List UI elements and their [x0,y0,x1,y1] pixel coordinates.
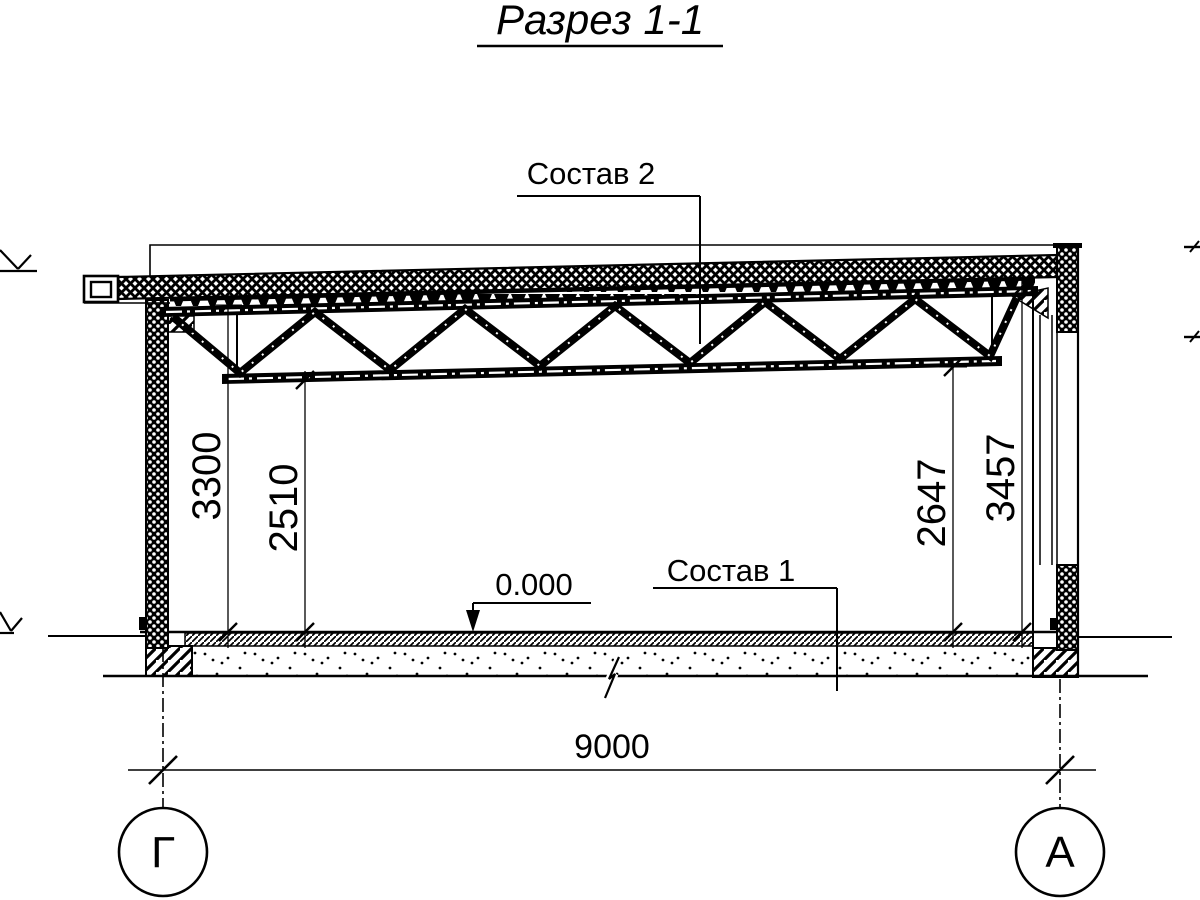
dimension-left-inner: 2510 [262,371,319,648]
foundation-right [1033,648,1078,677]
dim-value-2647: 2647 [910,459,954,548]
wall-right-lower-panel [1057,565,1078,650]
eave-gutter-inner [91,282,111,297]
wall-right-step [1050,618,1057,630]
elev-mark-roof-left-tick [18,255,31,269]
dim-value-9000: 9000 [574,728,650,766]
foundation-left [146,646,192,676]
elev-mark-roof-left-slash [0,250,18,269]
elev-mark-floor-left-slash [0,612,11,631]
dimension-right-outer: 3457 [979,278,1036,648]
dimension-right-inner: 2647 [910,358,967,648]
wall-left [139,300,168,648]
floor-composition-label: Состав 1 [667,553,796,588]
callout-floor-elevation: 0.000 [466,567,591,632]
drawing-title: Разрез 1-1 [477,0,723,46]
axis-bubbles: Г А [119,808,1104,896]
elev-mark-floor-left-tick [11,618,22,631]
floor-elevation-label: 0.000 [495,567,573,602]
dim-value-3300: 3300 [185,432,229,521]
page-title: Разрез 1-1 [496,0,704,43]
axis-letter-left: Г [151,828,175,877]
floor-screed-band [185,633,1033,646]
roof-composition-label: Состав 2 [527,156,656,191]
wall-left-step [139,617,146,630]
dim-value-3457: 3457 [979,434,1023,523]
floor-assembly [48,632,1172,698]
wall-left-panel [146,300,168,648]
dim-value-2510: 2510 [262,464,306,553]
truss-bearing-left [168,316,194,332]
parapet-right [1057,245,1078,332]
drawing-svg: Состав 2 Состав 1 0.000 3300 2510 2647 [0,0,1200,900]
section-drawing: Состав 2 Состав 1 0.000 3300 2510 2647 [0,0,1200,900]
axis-letter-right: А [1045,828,1075,877]
floor-elevation-arrow [466,610,480,632]
